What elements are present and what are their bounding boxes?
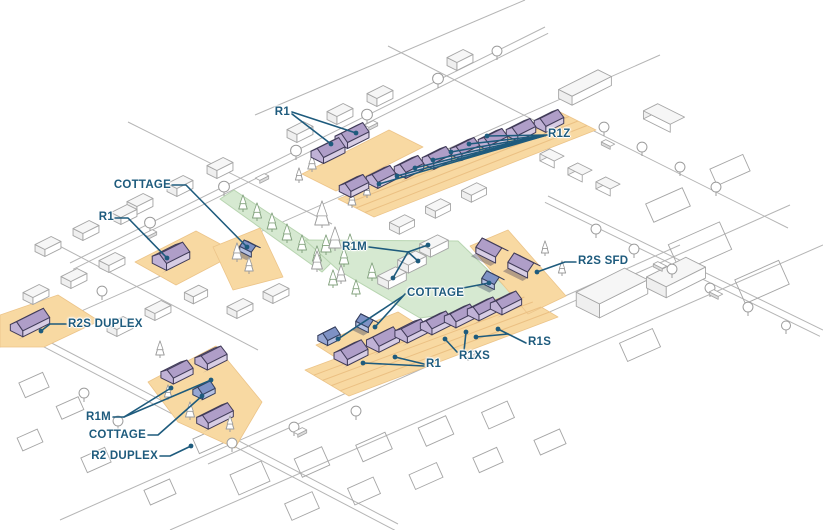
context-building — [35, 237, 61, 257]
leader-dot — [443, 337, 448, 342]
leader-dot — [329, 142, 334, 147]
leader-dot — [496, 327, 501, 332]
tree-deciduous-icon — [227, 438, 237, 452]
context-building — [263, 284, 289, 304]
leader-dot — [467, 142, 472, 147]
tree-conifer-icon — [295, 168, 302, 183]
leader-dot — [189, 444, 194, 449]
context-building — [540, 149, 564, 168]
car-icon — [143, 230, 156, 240]
leader-dot — [413, 166, 418, 171]
context-building — [287, 122, 313, 143]
context-building — [576, 268, 648, 318]
context-building — [167, 176, 193, 197]
leader-dot — [336, 337, 341, 342]
leader-dot — [426, 243, 431, 248]
leader-dot — [393, 355, 398, 360]
leader-dot — [165, 256, 170, 261]
context-building — [73, 221, 99, 241]
leader-dot — [449, 150, 454, 155]
context-building — [643, 104, 684, 133]
leader-dot — [535, 270, 540, 275]
context-building — [184, 285, 207, 304]
leader-dot — [431, 158, 436, 163]
context-building — [367, 86, 393, 107]
context-building — [61, 269, 87, 289]
leader-dot — [200, 394, 205, 399]
zoning-map-canvas — [0, 0, 823, 530]
tree-deciduous-icon — [79, 388, 89, 402]
leader-dot — [485, 134, 490, 139]
tree-deciduous-icon — [637, 142, 647, 156]
leader-dot — [245, 245, 250, 250]
car-icon — [709, 290, 722, 300]
tree-conifer-icon — [329, 270, 338, 288]
context-building — [559, 70, 612, 105]
leader-dot — [377, 182, 382, 187]
lots-layer — [0, 112, 596, 448]
context-building — [99, 253, 125, 273]
tree-deciduous-icon — [113, 416, 123, 430]
car-icon — [255, 174, 268, 184]
leader-dot — [373, 325, 378, 330]
leader-dot — [487, 281, 492, 286]
context-building — [227, 299, 253, 319]
tree-deciduous-icon — [97, 286, 107, 300]
context-building — [145, 301, 171, 321]
leader-dot — [391, 276, 396, 281]
context-building — [111, 205, 137, 225]
tree-deciduous-icon — [291, 145, 302, 160]
leader-dot — [39, 329, 44, 334]
leader-dot — [169, 386, 174, 391]
context-building — [461, 183, 486, 203]
context-building — [596, 177, 620, 196]
tree-deciduous-icon — [351, 406, 361, 420]
zoning-illustration: R1R1ZCOTTAGER1R1MR2S SFDCOTTAGER2S DUPLE… — [0, 0, 823, 530]
tree-deciduous-icon — [629, 244, 639, 258]
context-building — [327, 104, 353, 125]
leader-dot — [464, 330, 469, 335]
context-building — [389, 215, 414, 235]
car-icon — [601, 140, 614, 150]
leader-dot — [361, 361, 366, 366]
tree-conifer-icon — [329, 227, 342, 251]
tree-deciduous-icon — [591, 224, 601, 238]
context-building — [107, 317, 133, 337]
tree-conifer-icon — [156, 341, 164, 358]
context-building — [425, 199, 450, 219]
tree-deciduous-icon — [675, 162, 685, 176]
context-building — [447, 50, 473, 71]
context-building — [568, 163, 592, 182]
tree-conifer-icon — [315, 201, 329, 228]
context-building — [207, 158, 233, 179]
tree-deciduous-icon — [743, 302, 753, 316]
leader-dot — [209, 378, 214, 383]
leader-dot — [416, 259, 421, 264]
tree-deciduous-icon — [782, 321, 791, 334]
tree-conifer-icon — [541, 241, 548, 256]
tree-deciduous-icon — [492, 46, 502, 60]
leader-dot — [474, 335, 479, 340]
leader-dot — [354, 131, 359, 136]
tree-deciduous-icon — [145, 217, 156, 232]
